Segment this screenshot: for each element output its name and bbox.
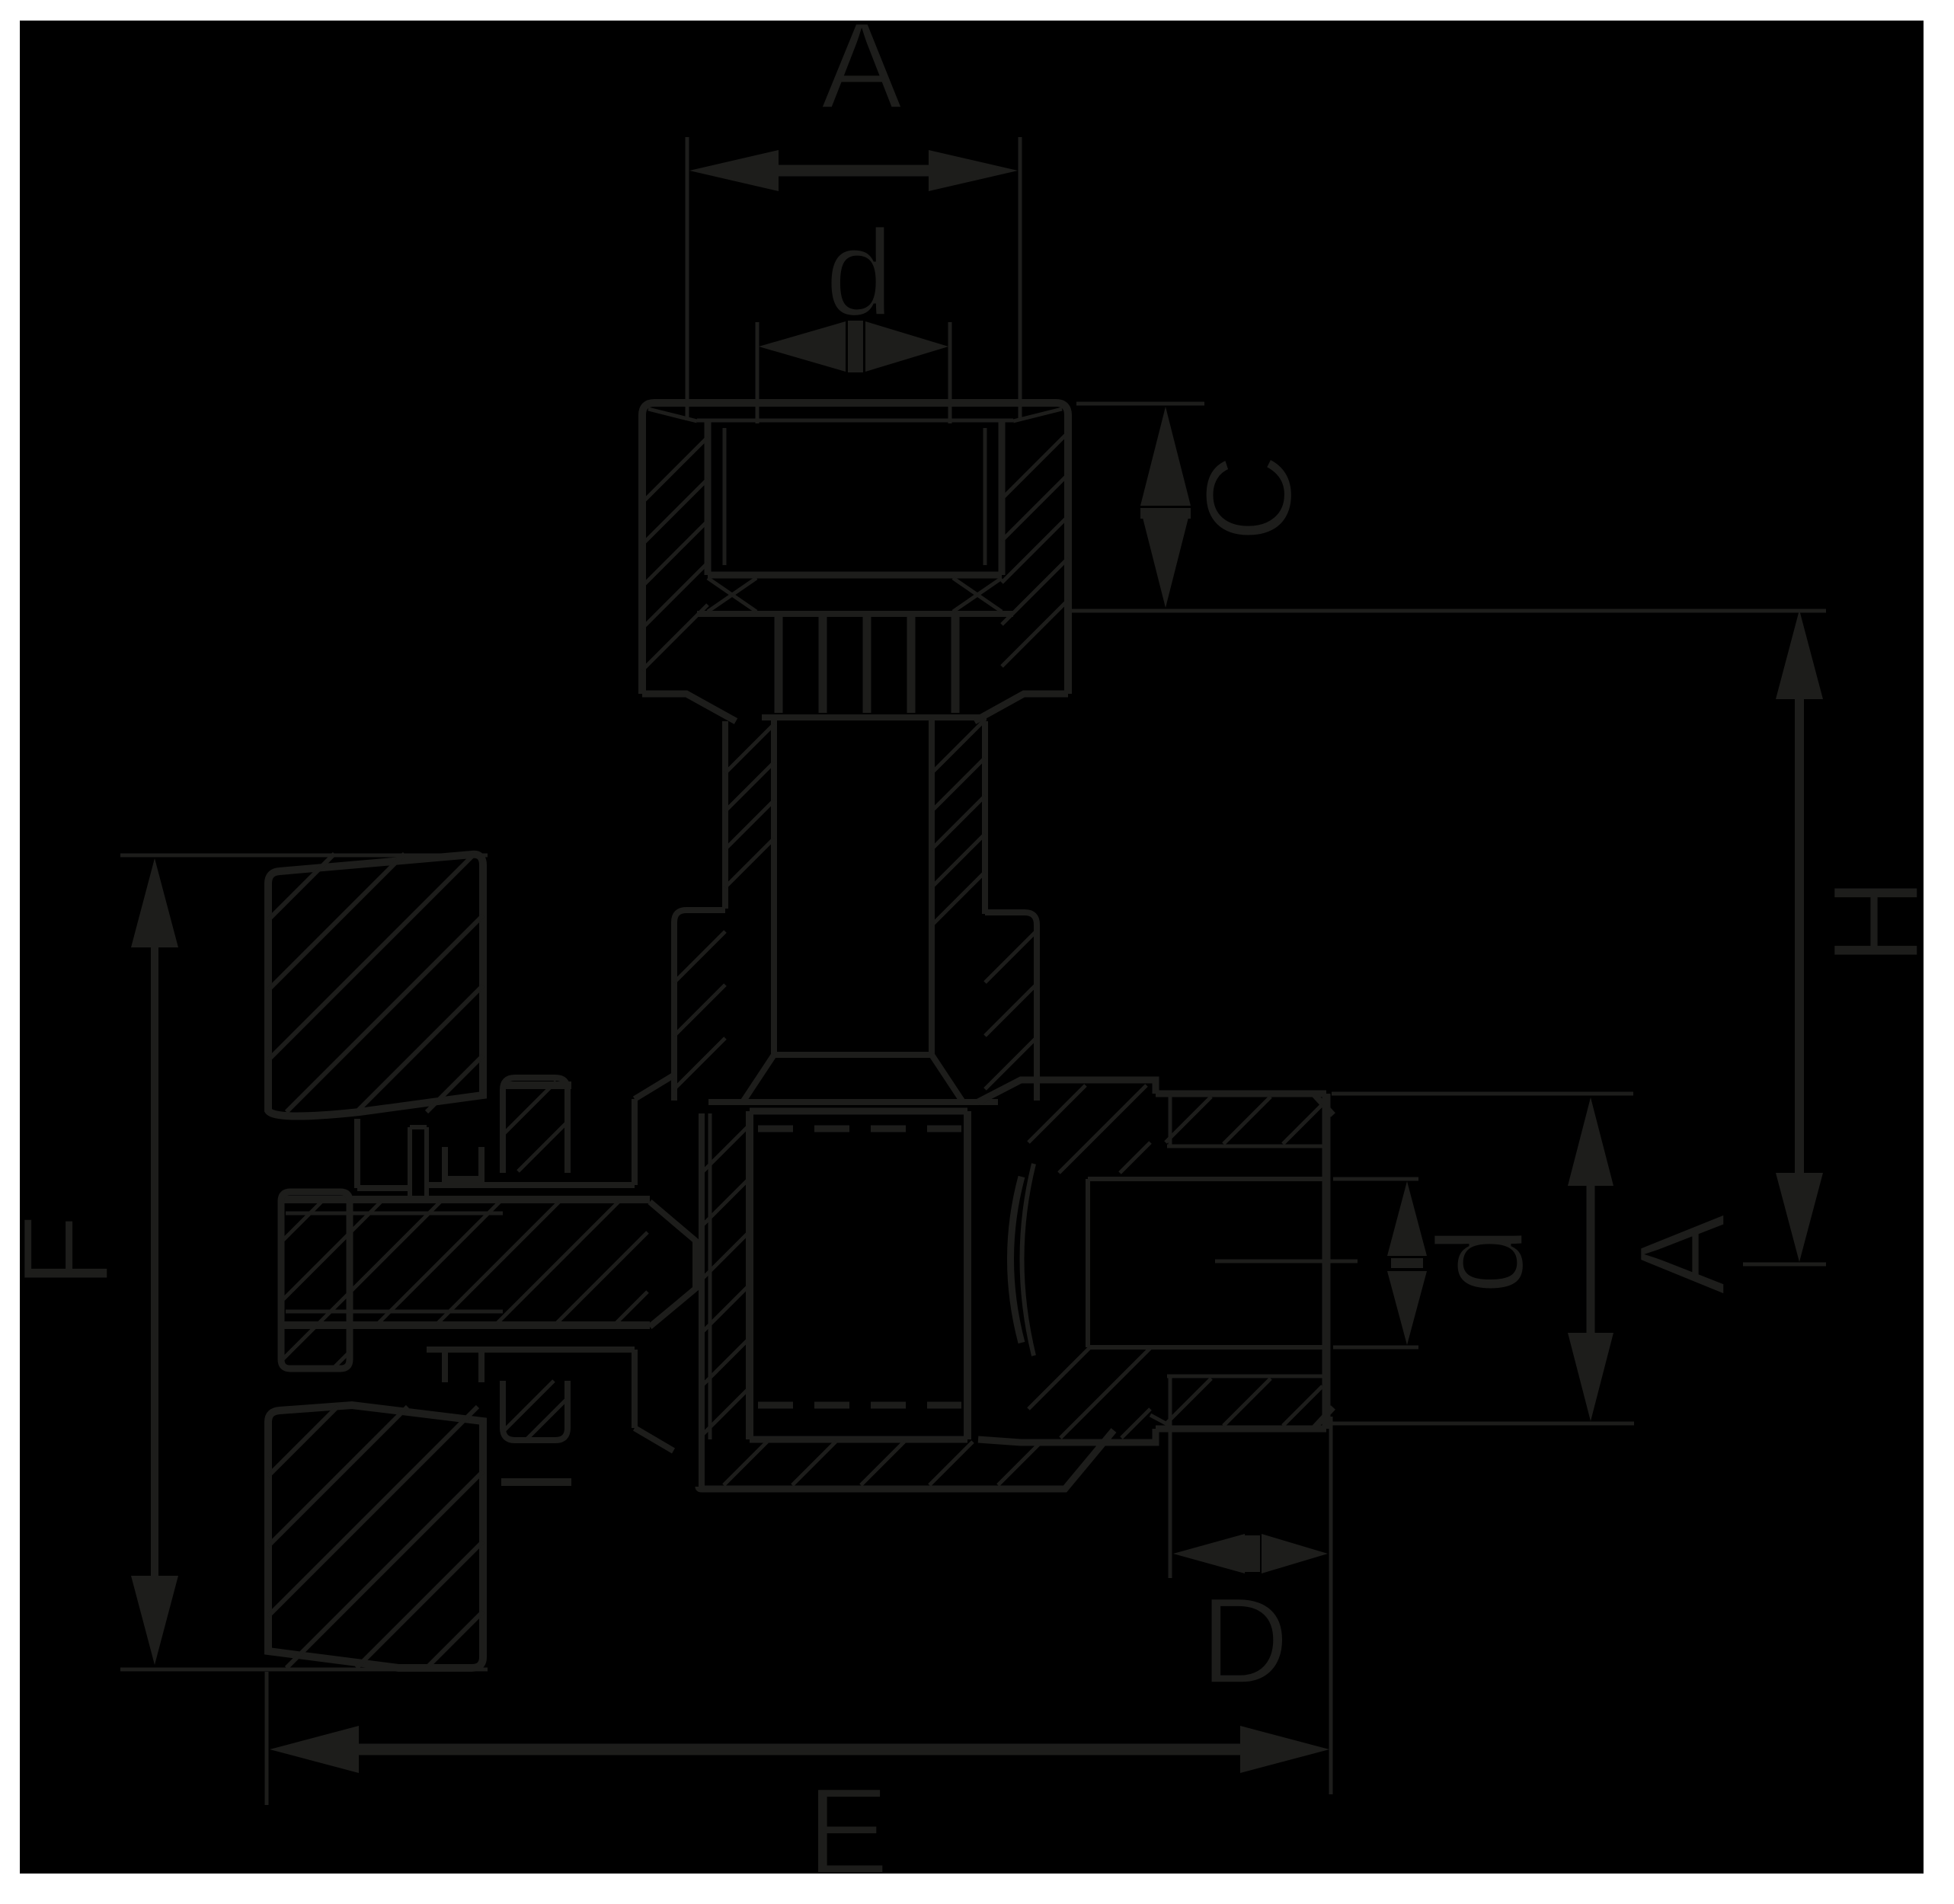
svg-text:D: D bbox=[1201, 1572, 1290, 1710]
svg-text:A: A bbox=[1613, 1213, 1751, 1295]
svg-text:d: d bbox=[1412, 1226, 1549, 1295]
svg-text:F: F bbox=[0, 1214, 135, 1289]
svg-text:C: C bbox=[1180, 454, 1318, 543]
